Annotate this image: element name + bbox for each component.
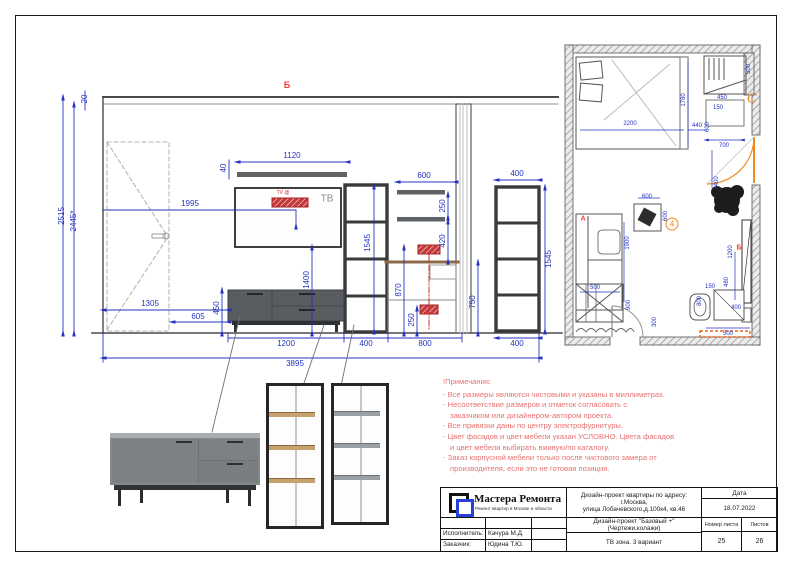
logo-title: Мастера Ремонта	[474, 493, 561, 505]
plan-dim-niche-gap: 150	[713, 104, 723, 112]
client-label-cell: Заказчик:	[441, 539, 485, 551]
shelf-tower-right	[496, 187, 539, 331]
dim-desk-shelf-off: 420	[439, 234, 447, 247]
plan-dim-column: 600	[704, 122, 712, 132]
date-label: Дата	[702, 488, 777, 498]
plan-dim-table-w: 600	[642, 193, 652, 201]
client-label: Заказчик:	[441, 540, 485, 549]
notes-block: !Примечания: - Все размеры являются чист…	[443, 377, 773, 474]
plan-dim-sofa-width: 500	[590, 284, 600, 292]
plan-dim-tv-wall: 1200	[727, 245, 735, 258]
sofa-plan	[576, 214, 622, 310]
sheet-title-cell: ТВ зона. 3 вариант	[566, 532, 701, 551]
dim-top-shelf-thk: 40	[220, 164, 228, 173]
date-value: 18.07.2022	[702, 499, 777, 517]
desk-outlet-high-icon	[418, 245, 440, 254]
dim-tower-right-h: 1545	[545, 250, 553, 268]
note-line: - Все размеры являются чистовыми и указа…	[443, 390, 773, 401]
note-line: производителя, если это не готовая позиц…	[443, 464, 773, 475]
tv-label: ТВ	[321, 194, 334, 205]
client-name: Юдина Т.Ю.	[486, 540, 531, 549]
wardrobe-plan	[704, 56, 746, 126]
plan-dim-wardrobe2: 900	[625, 300, 633, 310]
desk-elevation	[386, 262, 458, 333]
dim-top-shelf-width: 1120	[283, 152, 300, 160]
plan-dim-tv-gap: 480	[723, 277, 731, 287]
dim-stand-height: 450	[213, 301, 221, 314]
plan-marker-a: А	[580, 216, 585, 223]
plan-callout-4: 4	[666, 218, 679, 231]
plan-marker-c: С	[747, 92, 757, 107]
project-address-1: Дизайн-проект квартиры по адресу: г.Моск…	[567, 492, 701, 506]
dim-tv-center: 1995	[181, 200, 199, 208]
dim-tower-left-w: 400	[359, 340, 372, 348]
project-type: Дизайн-проект "Базовый +" (Чертежи,колаж…	[567, 518, 701, 532]
dim-tower-left-h: 1545	[364, 234, 372, 252]
plan-dim-door-width: 1400	[713, 176, 721, 189]
elevation-view-marker: Б	[284, 80, 290, 90]
drawing-sheet: 20 2515 2445* 1995 1120 40 1400 1545 600…	[0, 0, 791, 565]
project-address-2: улица Лобачевского,д.100к4, кв.46	[583, 506, 686, 513]
plan-dim-tv-shelf: 400	[731, 304, 741, 312]
plan-dim-door-offset: 700	[719, 142, 729, 150]
client-cell: Юдина Т.Ю.	[485, 539, 531, 551]
note-line: - Цвет фасадов и цвет мебели указан УСЛО…	[443, 432, 773, 443]
shelf-tower-left	[345, 185, 387, 332]
tv-stand-elevation	[228, 290, 344, 332]
executor-label: Исполнитель:	[441, 529, 485, 538]
executor-cell: Качура М.Д.	[485, 528, 531, 539]
shelf-tower-photo-2	[331, 383, 389, 525]
notes-title: !Примечания:	[443, 377, 773, 388]
dim-outlet-height: 870	[395, 283, 403, 296]
project-type-cell: Дизайн-проект "Базовый +" (Чертежи,колаж…	[566, 517, 701, 532]
plan-dim-bed-length: 1780	[680, 93, 688, 106]
title-block: Мастера Ремонта Ремонт квартир в Москве …	[440, 487, 778, 552]
dim-desk-shelf-gap: 250	[439, 199, 447, 212]
plan-dim-sofa-length: 1900	[624, 236, 632, 249]
dim-outlet-low: 250	[408, 313, 416, 326]
logo-icon-blue	[456, 499, 474, 517]
shelf-tower-photo-1	[266, 383, 324, 529]
dim-stand-offset: 1305	[141, 300, 159, 308]
sheet-num-cell: 25	[701, 531, 741, 551]
note-line: и цвет мебели выбирать вживую/по каталог…	[443, 443, 773, 454]
dim-tower-right-wb: 400	[510, 340, 523, 348]
sheet-num: 25	[702, 532, 741, 551]
executor-label-cell: Исполнитель:	[441, 528, 485, 539]
curtain-icon	[576, 329, 634, 333]
plan-dim-desk-gap: 150	[705, 283, 715, 291]
plan-dim-bed-width: 2200	[623, 120, 636, 128]
floor-plan	[565, 45, 760, 345]
dim-desk-shelf-w: 600	[417, 172, 430, 180]
plan-dim-wardrobe-depth: 500	[745, 64, 753, 74]
sheet-num-label: Номер листа	[702, 518, 741, 531]
plan-dim-desk: 800	[696, 296, 704, 306]
dim-desk-width: 800	[418, 340, 431, 348]
note-line: заказчиком или дизайнером-автором проект…	[443, 411, 773, 422]
dim-tv-zone-height: 1400	[303, 271, 311, 289]
door-leaf	[107, 142, 169, 331]
dim-height-total: 2515	[58, 207, 66, 225]
sheets-total-cell: 26	[741, 531, 777, 551]
plan-marker-b: Б	[736, 245, 741, 252]
note-line: - Заказ корпусной мебели только после чи…	[443, 453, 773, 464]
table-plan	[634, 204, 661, 231]
bed	[576, 57, 688, 149]
desk-shelf-2	[397, 217, 445, 222]
plan-dim-entry: 300	[651, 317, 659, 327]
dim-ceiling-gap: 20	[81, 95, 89, 104]
tv-stand-photo	[110, 433, 260, 508]
plan-dim-wardrobe-width: 450	[717, 94, 727, 102]
date-label-cell: Дата	[701, 488, 777, 498]
sheets-total: 26	[742, 532, 777, 551]
sheets-label-cell: Листов	[741, 517, 777, 531]
plan-dim-bed-gap: 440	[692, 122, 702, 130]
note-line: - Все привязки даны по центру электрофур…	[443, 421, 773, 432]
plan-dim-radiator: 500	[723, 330, 733, 338]
tv-outlet-icon	[272, 198, 308, 207]
note-line: - Несоответствие размеров и отметок согл…	[443, 400, 773, 411]
executor-name: Качура М.Д.	[486, 529, 531, 538]
wall-shelf-top	[237, 172, 347, 177]
sheet-num-label-cell: Номер листа	[701, 517, 741, 531]
dim-tower-right-wt: 400	[510, 170, 523, 178]
logo-cell: Мастера Ремонта Ремонт квартир в Москве …	[441, 488, 566, 517]
dim-stand-width: 1200	[277, 340, 295, 348]
sheet-title: ТВ зона. 3 вариант	[567, 533, 701, 551]
dim-desk-height: 750	[469, 295, 477, 308]
dim-door-to-stand: 605	[191, 313, 204, 321]
project-address-cell: Дизайн-проект квартиры по адресу: г.Моск…	[566, 488, 701, 517]
logo-subtitle: Ремонт квартир в Москве и области	[475, 506, 552, 511]
dim-height-clear: 2445*	[70, 211, 78, 232]
date-value-cell: 18.07.2022	[701, 498, 777, 517]
tv-outlet-label: TV @	[277, 190, 290, 196]
dim-total-width: 3895	[286, 360, 304, 368]
desk-shelf-1	[397, 190, 445, 195]
sheets-label: Листов	[742, 518, 777, 531]
